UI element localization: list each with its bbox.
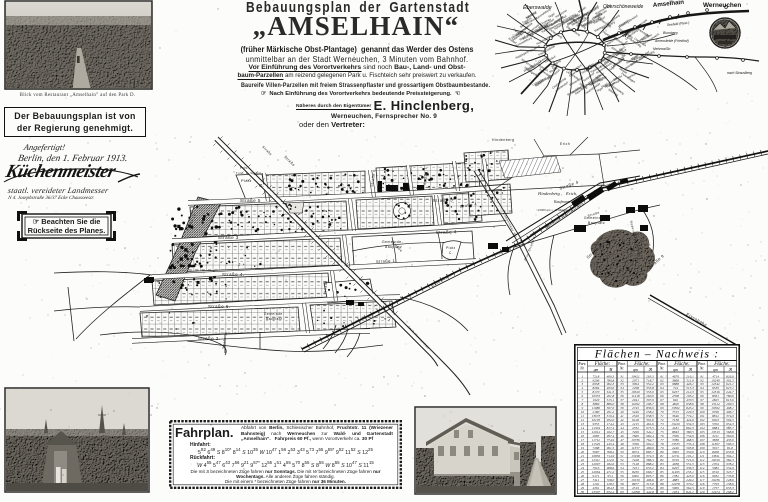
svg-text:Nr.: Nr. <box>619 367 624 371</box>
svg-text:Straße 4: Straße 4 <box>436 229 457 235</box>
svg-text:Hindenberg , Erich,: Hindenberg , Erich, <box>537 191 577 197</box>
svg-text:120: 120 <box>699 490 704 494</box>
svg-text:Nr.: Nr. <box>699 367 704 371</box>
svg-text:Flächen – Nachweis :: Flächen – Nachweis : <box>594 349 720 361</box>
svg-text:Straße 3: Straße 3 <box>218 235 239 240</box>
svg-text:12098: 12098 <box>631 490 640 494</box>
svg-text:Erich: Erich <box>560 142 570 146</box>
svg-text:Ahrensfelde (Friedhof): Ahrensfelde (Friedhof) <box>654 39 689 43</box>
svg-text:Platz: Platz <box>241 179 252 183</box>
svg-text:~10000 qm = 10 Morgen: ~10000 qm = 10 Morgen <box>536 208 568 212</box>
svg-text:Eisenbahn: Eisenbahn <box>430 271 454 288</box>
svg-text:Nr.: Nr. <box>579 367 584 371</box>
svg-text:1934: 1934 <box>672 490 679 494</box>
svg-text:Cöpenicker Str.: Cöpenicker Str. <box>502 212 518 240</box>
svg-text:Eisenbahn: Eisenbahn <box>686 312 709 328</box>
svg-text:Platz: Platz <box>446 246 456 250</box>
svg-text:Gemeinde-: Gemeinde- <box>382 240 403 244</box>
svg-text:Straße 5: Straße 5 <box>240 198 261 203</box>
svg-text:Straße: Straße <box>283 155 296 168</box>
svg-text:Straße 1: Straße 1 <box>376 258 396 264</box>
svg-text:Gemeinde: Gemeinde <box>264 312 283 316</box>
svg-text:Blumberg: Blumberg <box>663 31 678 35</box>
svg-text:Eberswalde: Eberswalde <box>523 5 552 11</box>
svg-text:nach Strausberg: nach Strausberg <box>727 71 752 75</box>
svg-text:Parz.: Parz. <box>657 362 666 366</box>
svg-text:Parz.: Parz. <box>697 362 706 366</box>
svg-text:13307: 13307 <box>592 490 601 494</box>
svg-text:Oberschöneweide: Oberschöneweide <box>603 4 644 10</box>
svg-text:Seefeld (Rest.): Seefeld (Rest.) <box>667 21 690 27</box>
svg-text:C.: C. <box>449 251 453 255</box>
svg-text:Straße 2.: Straße 2. <box>198 336 221 341</box>
svg-text:Priv.: Priv. <box>240 166 249 170</box>
svg-text:Bauplatz: Bauplatz <box>266 317 282 321</box>
svg-text:Straße 4.: Straße 4. <box>222 272 245 277</box>
svg-text:nach Werneuchen: nach Werneuchen <box>407 325 430 350</box>
svg-text:12474: 12474 <box>711 490 720 494</box>
svg-text:Straße 4: Straße 4 <box>559 179 580 191</box>
svg-text:90: 90 <box>660 490 664 494</box>
svg-text:Straße 5: Straße 5 <box>433 197 453 203</box>
svg-text:Turn- u. Spielpl.: Turn- u. Spielpl. <box>236 171 263 175</box>
svg-text:Werneuchen: Werneuchen <box>703 2 741 9</box>
svg-text:Parz.: Parz. <box>578 362 587 366</box>
svg-text:Nr.: Nr. <box>659 367 664 371</box>
svg-text:Kaufmann.: Kaufmann. <box>553 200 571 204</box>
svg-text:Bauplatz: Bauplatz <box>385 245 402 249</box>
svg-text:Hindenberg: Hindenberg <box>492 138 515 142</box>
svg-text:Mehrow/Str.: Mehrow/Str. <box>653 47 671 51</box>
svg-text:30: 30 <box>581 490 585 494</box>
svg-text:60: 60 <box>620 490 624 494</box>
svg-text:Straße: Straße <box>261 145 273 157</box>
svg-text:Straße 6.: Straße 6. <box>208 304 231 309</box>
svg-text:Parz.: Parz. <box>617 362 626 366</box>
svg-text:Bauplatz: Bauplatz <box>588 221 605 225</box>
svg-text:Biesdorf: Biesdorf <box>627 14 638 23</box>
svg-text:Amselhain: Amselhain <box>652 0 684 9</box>
svg-text:G.: G. <box>259 183 265 188</box>
